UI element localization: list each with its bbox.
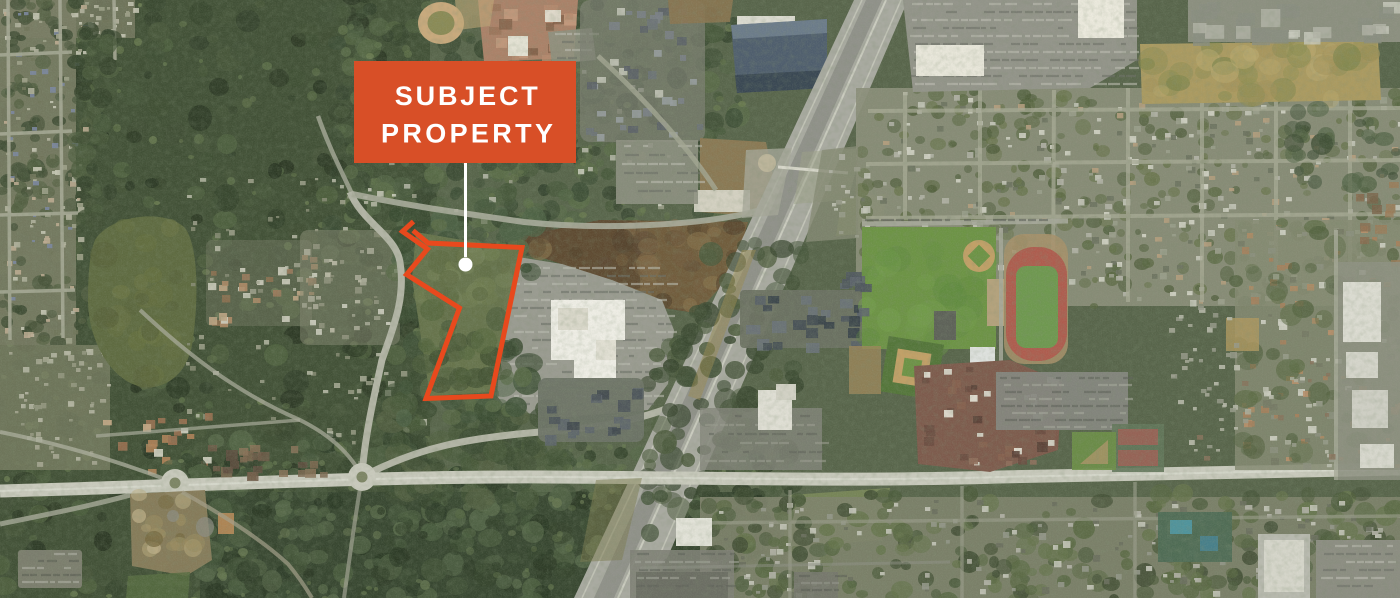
svg-text:SUBJECT: SUBJECT	[395, 81, 539, 111]
svg-text:PROPERTY: PROPERTY	[381, 119, 553, 149]
